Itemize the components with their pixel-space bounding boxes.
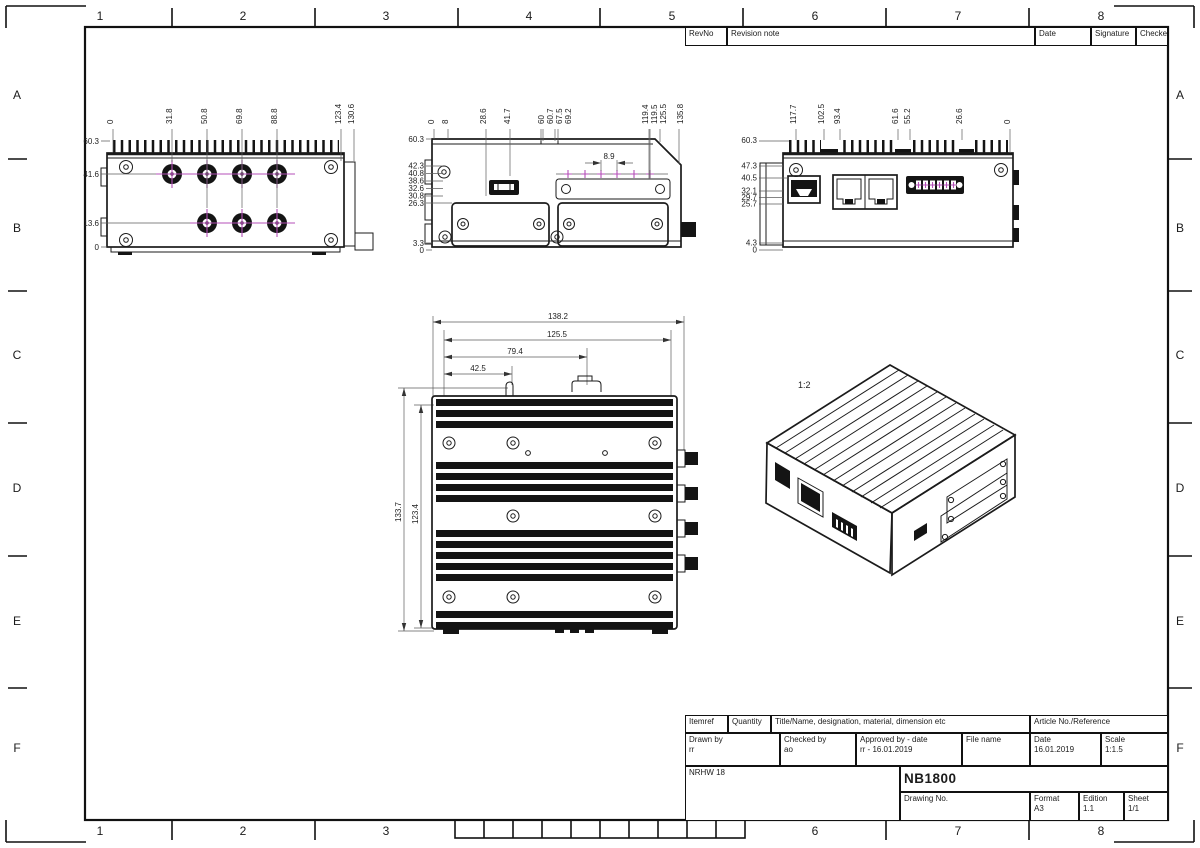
titleblock-drawing-no: Drawing No.: [900, 792, 1030, 821]
revision-col-signature: Signature: [1091, 27, 1136, 46]
panel-screws: [438, 166, 665, 243]
dim-label: 26.3: [408, 199, 424, 208]
dim-label: 25.7: [741, 200, 757, 209]
dim-label: 40.5: [741, 174, 757, 183]
title-block: Itemref Quantity Title/Name, designation…: [685, 715, 1168, 821]
dim-label: 55.2: [903, 108, 912, 124]
dim-label: 79.4: [507, 347, 523, 356]
titleblock-sheet: Sheet1/1: [1124, 792, 1168, 821]
corner-screws: [120, 161, 338, 247]
dim-label: 47.3: [741, 162, 757, 171]
grid-row-label: A: [13, 88, 21, 102]
sfp-port: [788, 176, 820, 203]
iso-right-panels: [914, 459, 1007, 542]
dim-label: 26.6: [955, 108, 964, 124]
left-side-view: 0 31.8 50.8 69.8 88.8 123.4 130.6 60.3 4…: [83, 103, 373, 255]
dim-label: 102.5: [817, 103, 826, 124]
dim-label: 13.6: [83, 219, 99, 228]
titleblock-checked-by: Checked byao: [780, 733, 856, 766]
dim-label: 8: [441, 119, 450, 124]
titleblock-quantity: Quantity: [728, 715, 771, 733]
drawing-sheet: 0 31.8 50.8 69.8 88.8 123.4 130.6 60.3 4…: [0, 0, 1200, 848]
titleblock-org: NRHW 18: [685, 766, 900, 821]
dim-label: 42.5: [470, 364, 486, 373]
dim-label: 41.6: [83, 170, 99, 179]
dim-label: 125.5: [659, 103, 668, 124]
dim-label: 0: [1003, 119, 1012, 124]
grid-row-label: B: [1176, 221, 1184, 235]
dim-label: 60.3: [83, 137, 99, 146]
dim-label: 123.4: [411, 503, 420, 524]
dim-label: 28.6: [479, 108, 488, 124]
titleblock-article: Article No./Reference: [1030, 715, 1168, 733]
grid-col-label: 3: [383, 9, 390, 23]
dim-label: 0: [106, 119, 115, 124]
isometric-view: 1:2: [766, 365, 1015, 575]
grid-col-label: 2: [240, 9, 247, 23]
grid-col-label: 2: [240, 824, 247, 838]
ethernet-ports: [833, 175, 897, 209]
grid-col-label: 1: [97, 9, 104, 23]
grid-col-label: 7: [955, 824, 962, 838]
dim-label: 31.8: [165, 108, 174, 124]
grid-col-label: 8: [1098, 9, 1105, 23]
dim-label: 0: [753, 246, 758, 255]
grid-row-label: E: [13, 614, 21, 628]
grid-col-label: 7: [955, 9, 962, 23]
iso-scale-label: 1:2: [798, 380, 811, 390]
grid-row-label: B: [13, 221, 21, 235]
heatsink-fins: [436, 399, 673, 629]
dim-label: 8.9: [603, 152, 615, 161]
dim-label: 119.5: [650, 104, 659, 124]
titleblock-title-name: Title/Name, designation, material, dimen…: [771, 715, 1030, 733]
dim-label: 119.4: [641, 104, 650, 124]
dim-label: 93.4: [833, 108, 842, 124]
top-view: 138.2 125.5 79.4 42.5 133.7 123.4: [394, 312, 698, 634]
antenna-connectors: [156, 160, 295, 237]
revision-col-date: Date: [1035, 27, 1091, 46]
dim-label: 125.5: [547, 330, 568, 339]
grid-row-label: F: [1176, 741, 1183, 755]
revision-table: RevNo Revision note Date Signature Check…: [685, 27, 1168, 46]
revision-col-checked: Checked: [1136, 27, 1168, 46]
dim-label: 61.6: [891, 108, 900, 124]
grid-col-label: 5: [669, 9, 676, 23]
detail-dimension: 8.9: [585, 152, 633, 171]
dim-label: 0: [420, 246, 425, 255]
dim-label: 60: [537, 115, 546, 124]
dim-label: 60.3: [408, 135, 424, 144]
grid-row-label: C: [13, 348, 22, 362]
dim-label: 133.7: [394, 501, 403, 522]
grid-row-label: C: [1176, 348, 1185, 362]
titleblock-product-title: NB1800: [900, 766, 1168, 792]
revision-col-note: Revision note: [727, 27, 1035, 46]
grid-col-label: 8: [1098, 824, 1105, 838]
dim-label: 0: [427, 119, 436, 124]
terminal-block: [906, 176, 964, 194]
dim-label: 69.8: [235, 108, 244, 124]
grid-col-label: 6: [812, 824, 819, 838]
dim-label: 60.3: [741, 136, 757, 145]
revision-col-revno: RevNo: [685, 27, 727, 46]
dim-label: 117.7: [789, 104, 798, 124]
grid-col-label: 1: [97, 824, 104, 838]
dim-label: 69.2: [564, 108, 573, 124]
dim-label: 88.8: [270, 108, 279, 124]
dim-label: 130.6: [347, 103, 356, 124]
dim-label: 0: [95, 243, 100, 252]
dim-label: 60.7: [546, 108, 555, 124]
titleblock-file-name: File name: [962, 733, 1030, 766]
grid-row-label: D: [1176, 481, 1185, 495]
titleblock-scale: Scale1:1.5: [1101, 733, 1168, 766]
iso-fins: [776, 370, 1003, 508]
dim-label: 67.5: [555, 108, 564, 124]
grid-row-label: E: [1176, 614, 1184, 628]
dim-label: 123.4: [334, 103, 343, 124]
grid-row-label: F: [13, 741, 20, 755]
titleblock-approved-by: Approved by - daterr - 16.01.2019: [856, 733, 962, 766]
titleblock-itemref: Itemref: [685, 715, 728, 733]
dim-label: 50.8: [200, 108, 209, 124]
grid-col-label: 3: [383, 824, 390, 838]
grid-row-label: A: [1176, 88, 1184, 102]
front-view: 8.9 0 8 28.6 41.7 60 60.7 67.5 69.2 119.…: [408, 103, 696, 255]
dim-label: 135.8: [676, 103, 685, 124]
titleblock-date: Date16.01.2019: [1030, 733, 1101, 766]
titleblock-drawn-by: Drawn byrr: [685, 733, 780, 766]
grid-col-label: 4: [526, 9, 533, 23]
dim-label: 138.2: [548, 312, 569, 321]
titleblock-format: FormatA3: [1030, 792, 1079, 821]
antenna-stubs: [677, 450, 698, 572]
connector-side-view: 117.7 102.5 93.4 61.6 55.2 26.6 0 60.3 4…: [741, 103, 1019, 254]
grid-col-label: 6: [812, 9, 819, 23]
titleblock-edition: Edition1.1: [1079, 792, 1124, 821]
dim-label: 41.7: [503, 108, 512, 124]
grid-row-label: D: [13, 481, 22, 495]
